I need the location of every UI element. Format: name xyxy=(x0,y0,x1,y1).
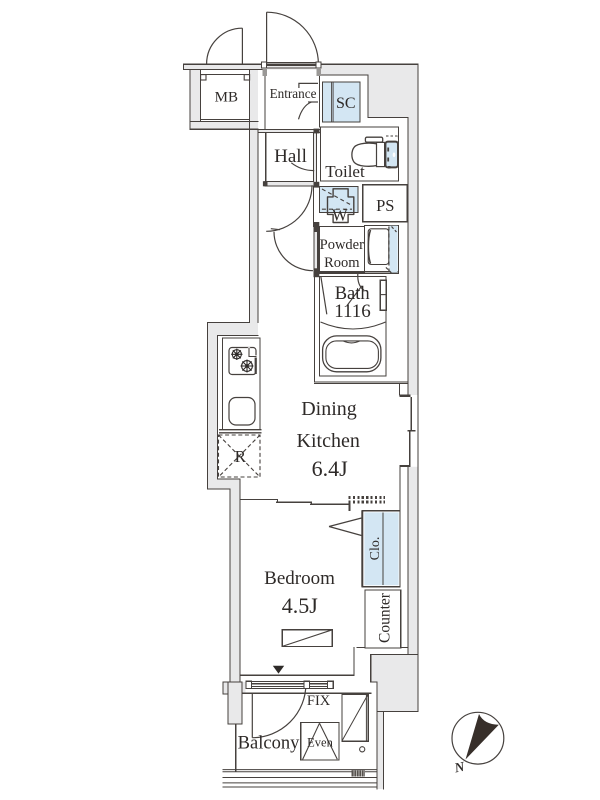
svg-text:6.4J: 6.4J xyxy=(312,456,349,481)
svg-text:Even: Even xyxy=(307,736,333,750)
svg-text:Balcony: Balcony xyxy=(238,734,300,754)
svg-text:W: W xyxy=(332,205,348,224)
svg-text:4.5J: 4.5J xyxy=(282,593,319,618)
svg-text:PS: PS xyxy=(376,196,394,215)
svg-text:Clo.: Clo. xyxy=(368,537,383,561)
svg-text:R: R xyxy=(235,447,247,466)
svg-text:1116: 1116 xyxy=(334,301,371,322)
svg-text:SC: SC xyxy=(336,95,356,112)
svg-text:Kitchen: Kitchen xyxy=(297,430,360,452)
svg-text:Dining: Dining xyxy=(301,398,357,420)
svg-text:Hall: Hall xyxy=(274,146,307,167)
svg-text:Room: Room xyxy=(324,255,360,271)
svg-text:Toilet: Toilet xyxy=(325,162,365,181)
svg-text:Powder: Powder xyxy=(320,237,364,253)
svg-text:MB: MB xyxy=(215,90,238,106)
svg-text:Bedroom: Bedroom xyxy=(264,568,335,589)
svg-text:Entrance: Entrance xyxy=(270,86,317,101)
svg-text:FIX: FIX xyxy=(307,693,331,709)
svg-text:Counter: Counter xyxy=(376,592,393,643)
